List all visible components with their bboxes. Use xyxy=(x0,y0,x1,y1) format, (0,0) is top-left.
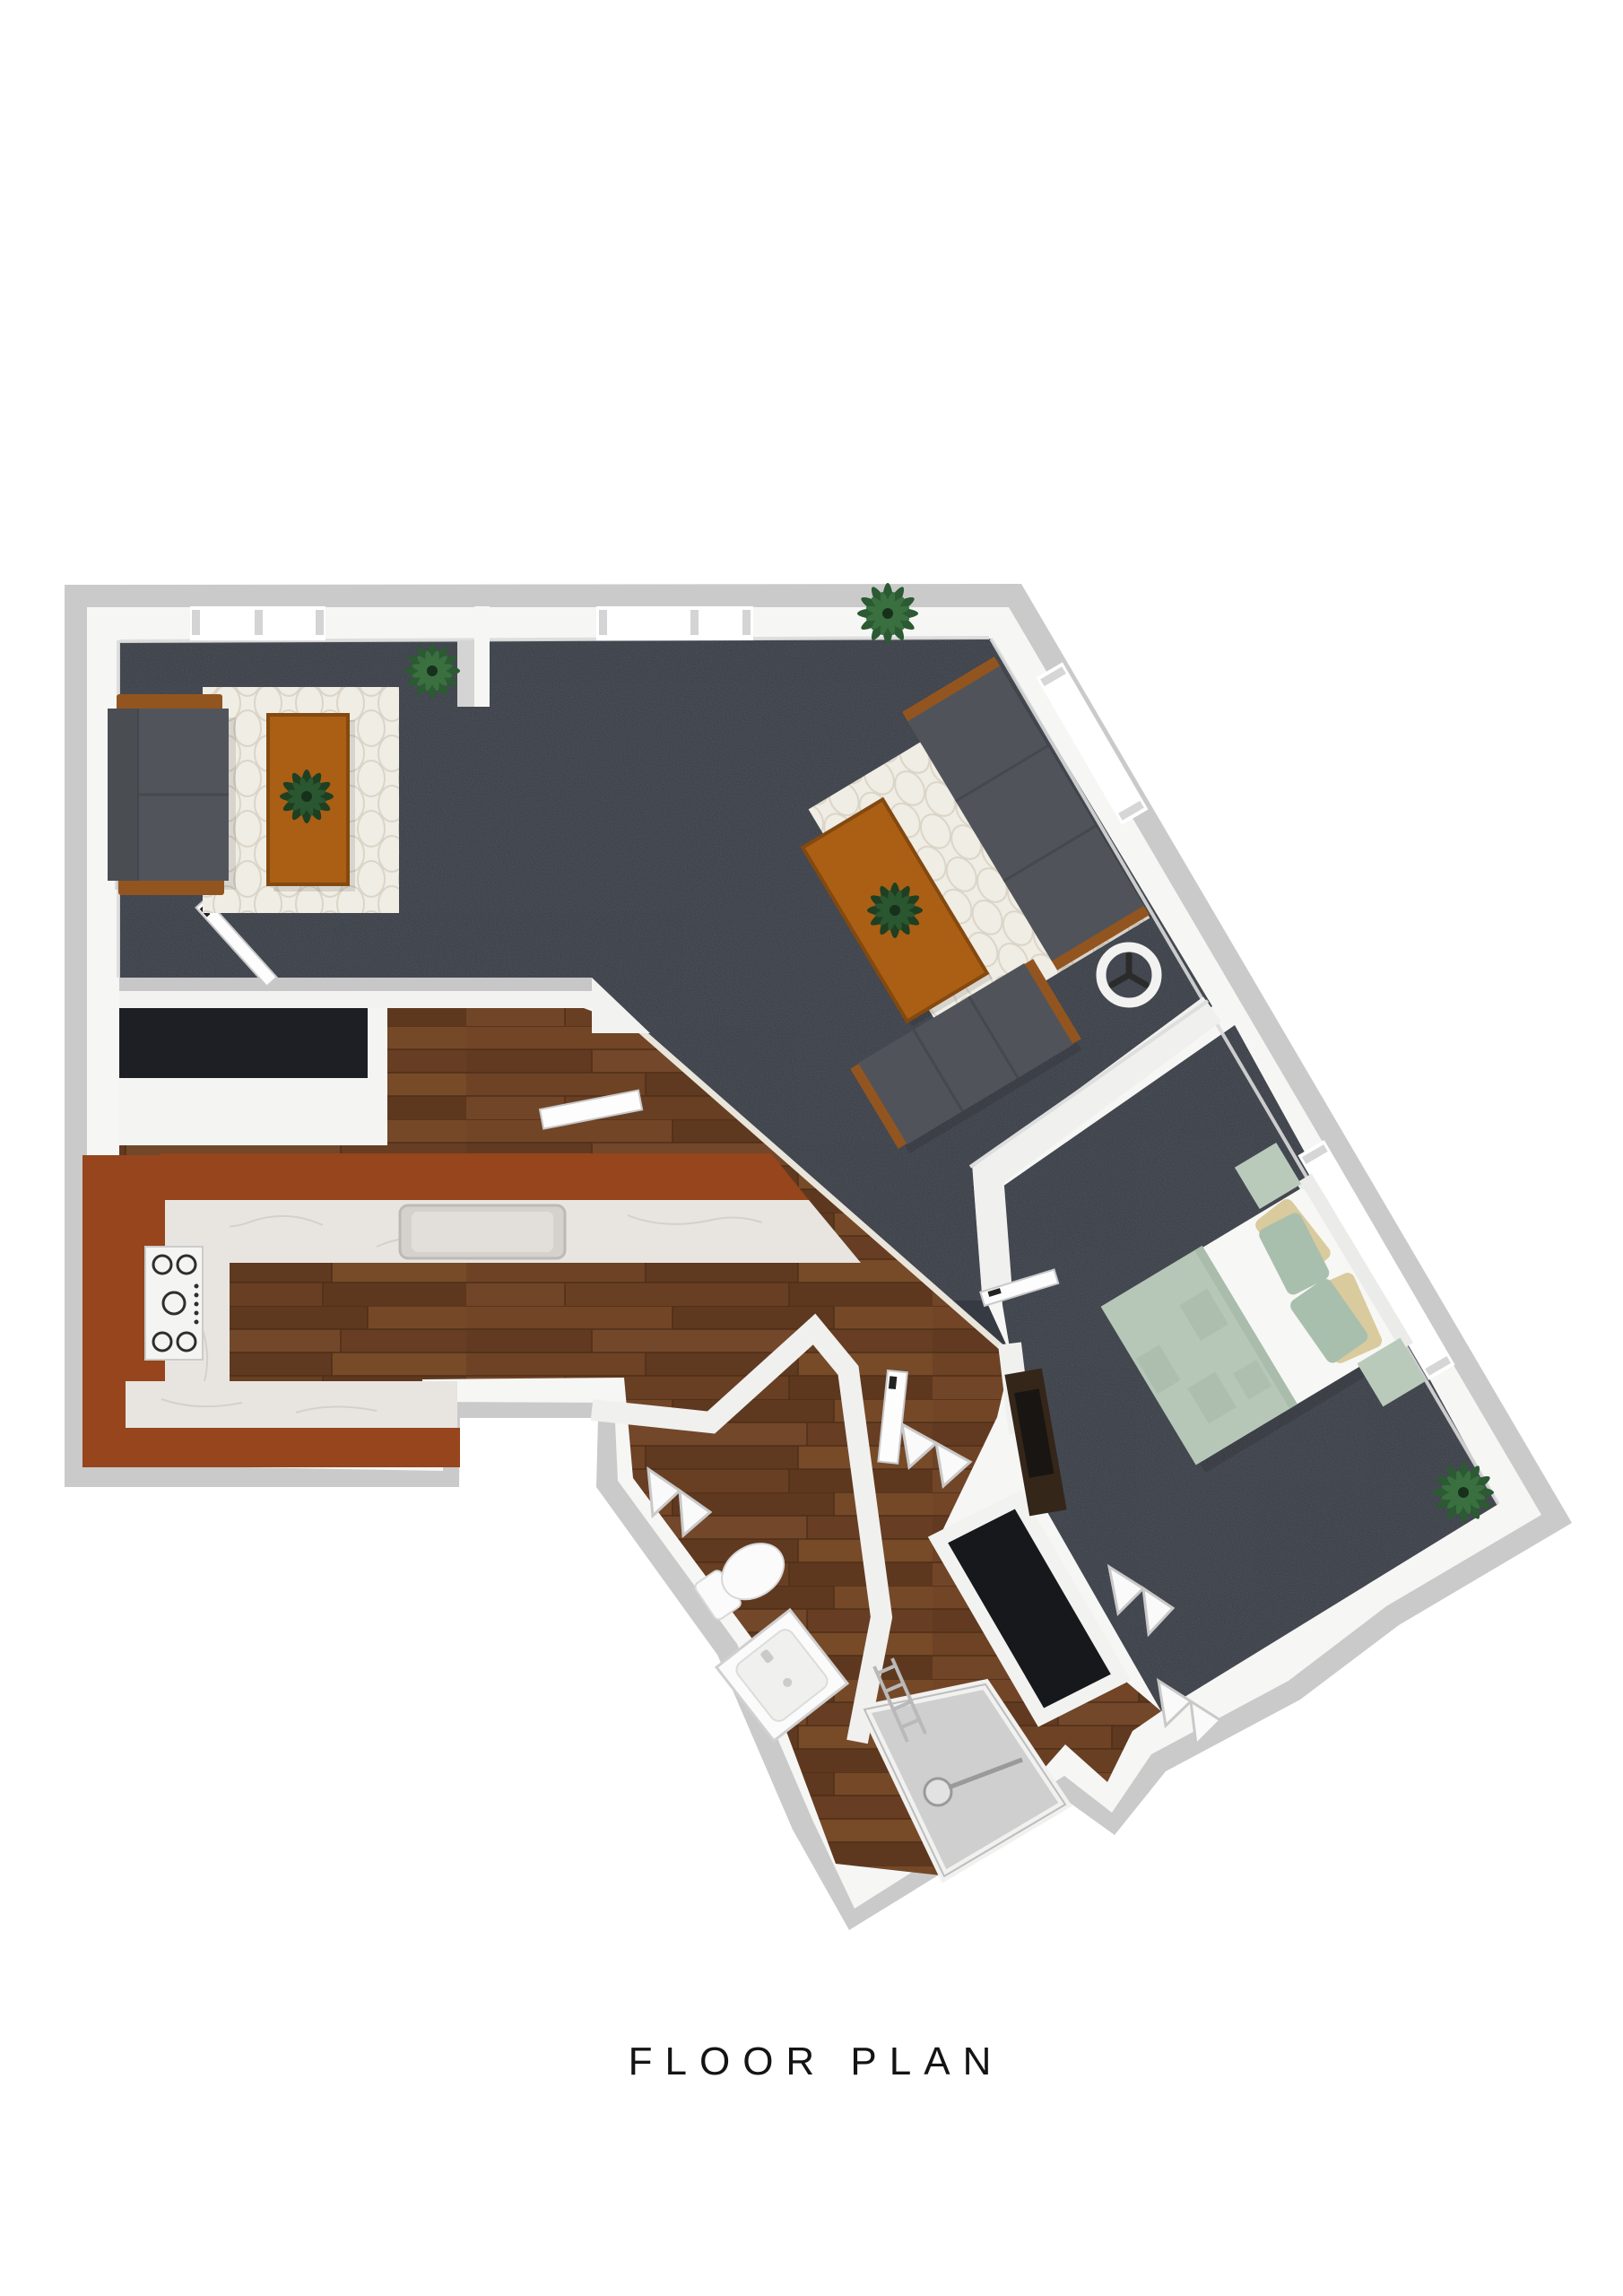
svg-text:FLOOR PLAN: FLOOR PLAN xyxy=(629,2039,1004,2083)
